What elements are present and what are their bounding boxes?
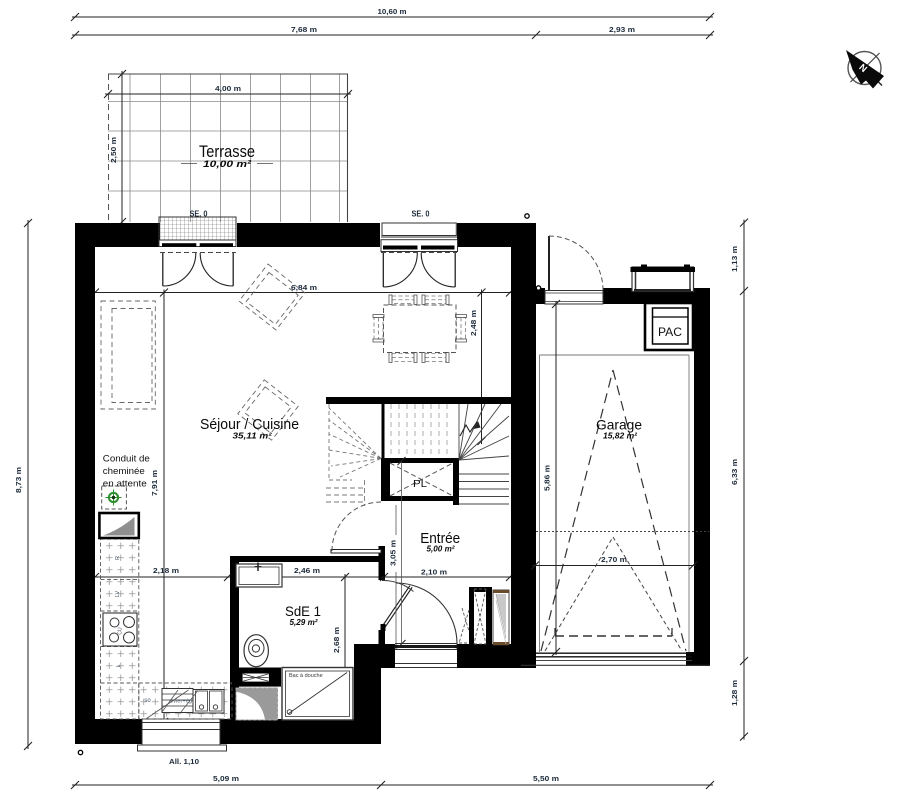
svg-text:Conduit de: Conduit de [103, 454, 150, 465]
svg-text:Bac à douche: Bac à douche [289, 673, 323, 679]
svg-text:7,91 m: 7,91 m [150, 470, 159, 496]
svg-text:2,50 m: 2,50 m [109, 137, 118, 163]
svg-text:en attente: en attente [103, 478, 147, 489]
svg-text:L: L [116, 664, 122, 667]
svg-text:5,50 m: 5,50 m [533, 774, 559, 783]
svg-text:2,93 m: 2,93 m [609, 25, 635, 34]
svg-text:cheminée: cheminée [103, 466, 145, 477]
svg-text:15,82 m²: 15,82 m² [603, 431, 638, 441]
svg-text:5,29 m²: 5,29 m² [290, 617, 319, 627]
svg-text:10,60 m: 10,60 m [378, 7, 407, 16]
svg-text:PAC: PAC [658, 327, 682, 339]
svg-text:3,05 m: 3,05 m [389, 540, 398, 566]
svg-text:7,68 m: 7,68 m [291, 25, 317, 34]
svg-text:2,48 m: 2,48 m [469, 310, 478, 336]
svg-text:PL: PL [413, 478, 427, 490]
svg-text:so: so [144, 698, 151, 704]
svg-text:2,68 m: 2,68 m [332, 627, 341, 653]
svg-text:6,33 m: 6,33 m [730, 459, 739, 485]
svg-text:CU: CU [118, 627, 124, 635]
svg-text:2,10 m: 2,10 m [421, 568, 447, 577]
svg-text:4,00 m: 4,00 m [215, 84, 241, 93]
svg-text:1,28 m: 1,28 m [730, 680, 739, 706]
svg-text:R: R [115, 556, 121, 560]
svg-text:2,18 m: 2,18 m [153, 566, 179, 575]
svg-text:8,73 m: 8,73 m [14, 467, 23, 493]
svg-text:35,11 m²: 35,11 m² [233, 431, 273, 441]
svg-text:LV: LV [115, 591, 121, 598]
svg-text:10,00 m²: 10,00 m² [203, 159, 252, 170]
svg-text:5,09 m: 5,09 m [213, 774, 239, 783]
svg-text:SE. 0: SE. 0 [190, 210, 208, 219]
svg-text:SE. 0: SE. 0 [412, 210, 430, 219]
svg-text:5,00 m²: 5,00 m² [427, 544, 456, 554]
svg-text:6,84 m: 6,84 m [291, 283, 317, 292]
svg-text:All. 1,10: All. 1,10 [169, 757, 199, 766]
svg-text:5,86 m: 5,86 m [543, 465, 552, 491]
svg-text:2,46 m: 2,46 m [294, 566, 320, 575]
svg-text:2,70 m: 2,70 m [601, 555, 627, 564]
svg-text:1,13 m: 1,13 m [730, 246, 739, 272]
